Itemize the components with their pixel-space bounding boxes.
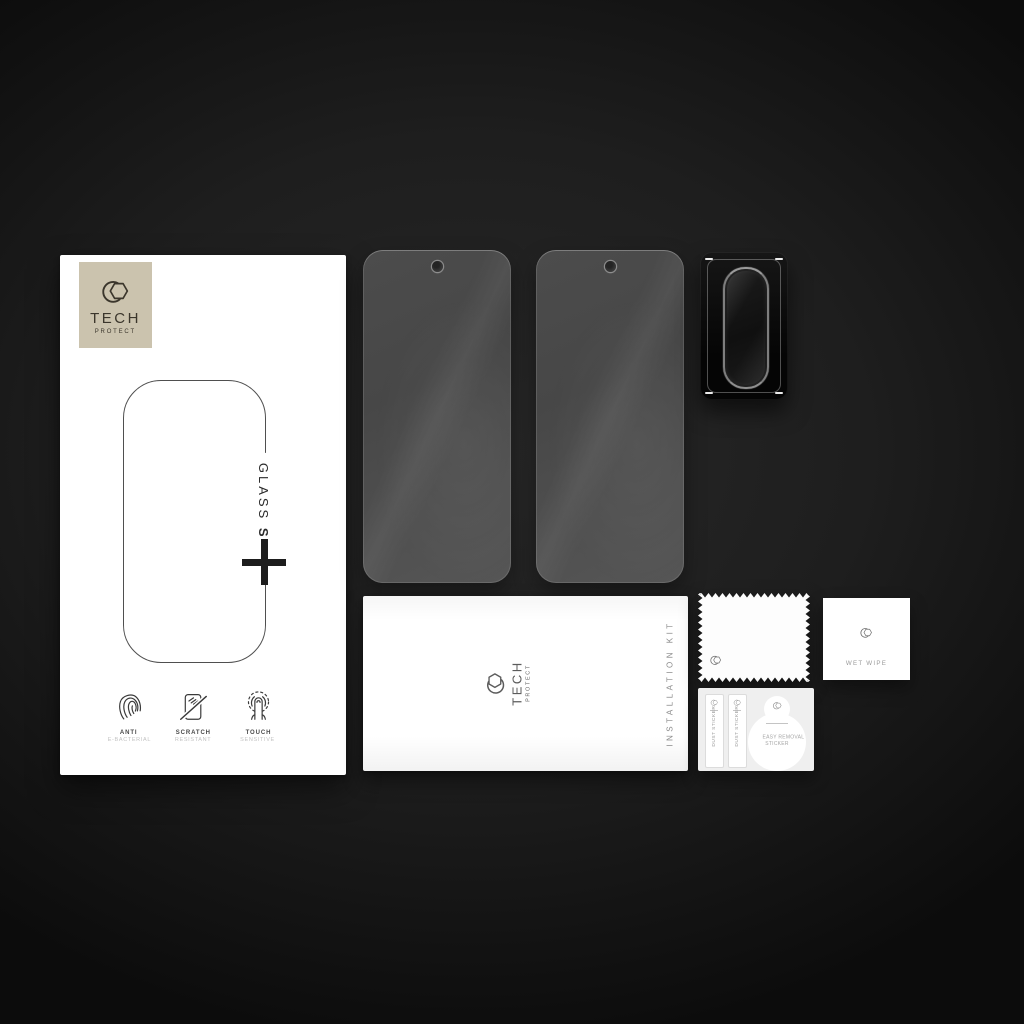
hexagon-brand-icon: [481, 670, 508, 697]
corner-mark: [775, 392, 783, 394]
series-label-regular: GLASS: [257, 462, 272, 520]
brand-subname: PROTECT: [524, 664, 530, 702]
feature-anti-bacterial: ANTI E-BACTERIAL: [94, 689, 164, 745]
wet-wipe-sachet: WET WIPE: [823, 598, 910, 680]
brand-name: TECH: [90, 310, 141, 327]
corner-mark: [705, 392, 713, 394]
feature-subtitle: SENSITIVE: [241, 736, 276, 742]
dust-sticker-label: DUST STICKER: [711, 726, 716, 746]
envelope-brand-logo: TECH PROTECT: [447, 623, 567, 743]
scratch-resistant-icon: [178, 689, 209, 724]
retail-box: TECH PROTECT GLASS SET ANTI E-BACTERIAL: [60, 255, 346, 775]
plus-icon: [242, 539, 286, 585]
feature-title: SCRATCH: [175, 729, 210, 736]
feature-subtitle: E-BACTERIAL: [107, 736, 150, 742]
hexagon-brand-icon: [772, 700, 783, 711]
camera-lens-protector: [700, 252, 788, 400]
dust-sticker-label: DUST STICKER: [734, 726, 739, 746]
installation-kit-envelope: TECH PROTECT INSTALLATION KIT: [363, 596, 688, 771]
microfiber-cloth: [698, 593, 810, 682]
camera-hole-cutout: [432, 261, 443, 272]
touch-finger-icon: [243, 689, 274, 724]
tempered-glass-1: [363, 250, 511, 583]
feature-title: ANTI: [120, 729, 138, 736]
camera-hole-cutout: [605, 261, 616, 272]
feature-scratch-resistant: SCRATCH RESISTANT: [158, 689, 228, 745]
corner-mark: [775, 258, 783, 260]
brand-name: TECH: [509, 660, 524, 705]
dust-sticker-strip: DUST STICKER: [728, 694, 747, 768]
product-photo-canvas: TECH PROTECT GLASS SET ANTI E-BACTERIAL: [0, 0, 1024, 1024]
tempered-glass-2: [536, 250, 684, 583]
zigzag-cloth-shape: [698, 593, 810, 682]
feature-title: TOUCH: [245, 729, 271, 736]
feature-subtitle: RESISTANT: [175, 736, 211, 742]
feature-touch-sensitive: TOUCH SENSITIVE: [223, 689, 293, 745]
wet-wipe-label: WET WIPE: [840, 660, 894, 667]
divider: [766, 723, 788, 724]
removal-sticker-label: EASY REMOVALSTICKER: [763, 734, 792, 747]
brand-logo-tile: TECH PROTECT: [79, 262, 152, 348]
hexagon-brand-icon: [709, 653, 723, 667]
brand-subname: PROTECT: [95, 328, 136, 335]
installation-kit-label: INSTALLATION KIT: [658, 596, 682, 771]
fingerprint-icon: [114, 689, 145, 724]
corner-mark: [705, 258, 713, 260]
lens-glass-oval: [723, 267, 769, 389]
hexagon-brand-icon: [859, 625, 874, 640]
dust-sticker-strip: DUST STICKER: [705, 694, 724, 768]
hexagon-brand-icon: [99, 274, 133, 308]
easy-removal-sticker: EASY REMOVALSTICKER: [748, 696, 806, 771]
phone-outline-drawing: [123, 380, 266, 663]
sticker-sheet: DUST STICKER DUST STICKER EASY REMOVALST…: [698, 688, 814, 771]
